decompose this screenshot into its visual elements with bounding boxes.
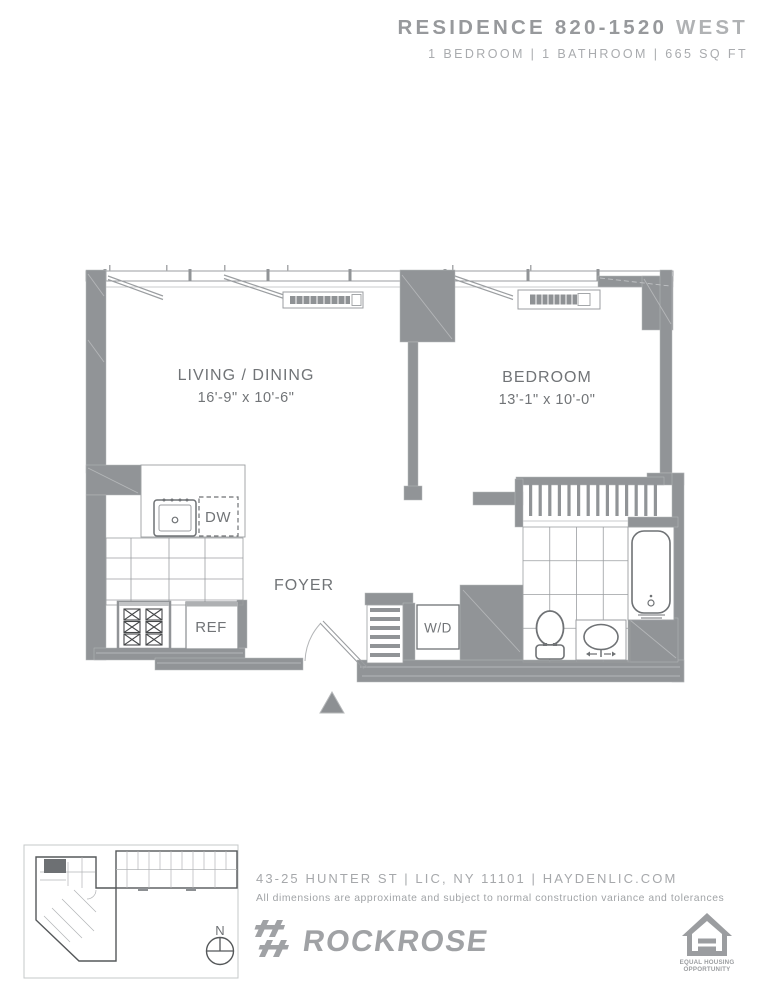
floorplan-drawing: DW REF: [0, 0, 773, 1000]
key-map: N: [24, 845, 238, 978]
stove: [118, 602, 170, 649]
dishwasher-label: DW: [205, 509, 231, 526]
floorplan-page: RESIDENCE 820-1520 WEST 1 BEDROOM | 1 BA…: [0, 0, 773, 1000]
linen-closet: [367, 605, 403, 663]
foyer-label: FOYER: [274, 577, 334, 594]
hvac-unit-living: [283, 292, 363, 308]
bedroom-dims: 13'-1" x 10'-0": [499, 392, 596, 408]
window-ticks: [109, 265, 532, 271]
eho-text-line2: OPPORTUNITY: [684, 966, 732, 973]
kitchen-floor-tiles: [106, 538, 243, 605]
washer-dryer: W/D: [417, 605, 459, 649]
bathtub: [628, 527, 674, 620]
entry-door: [305, 621, 367, 669]
refrigerator: REF: [186, 602, 238, 649]
washer-dryer-label: W/D: [424, 621, 452, 636]
foyer-area: W/D: [305, 605, 459, 713]
bedroom-closet: [523, 484, 657, 521]
rockrose-logo-icon: [255, 920, 290, 957]
bathroom-sink: [576, 620, 626, 660]
toilet: [536, 611, 564, 659]
compass-north-label: N: [215, 923, 224, 938]
entry-arrow: [320, 692, 344, 713]
bedroom-label: BEDROOM: [502, 369, 592, 386]
key-map-unit-highlight: [44, 859, 66, 873]
kitchen-sink: [154, 499, 196, 537]
living-room-dims: 16'-9" x 10'-6": [198, 390, 295, 406]
dishwasher: DW: [199, 497, 238, 536]
hvac-unit-bedroom: [518, 290, 600, 309]
living-room-label: LIVING / DINING: [178, 367, 315, 384]
eho-text-line1: EQUAL HOUSING: [680, 959, 735, 966]
equal-housing-logo: EQUAL HOUSING OPPORTUNITY: [680, 913, 735, 973]
refrigerator-label: REF: [195, 619, 227, 636]
